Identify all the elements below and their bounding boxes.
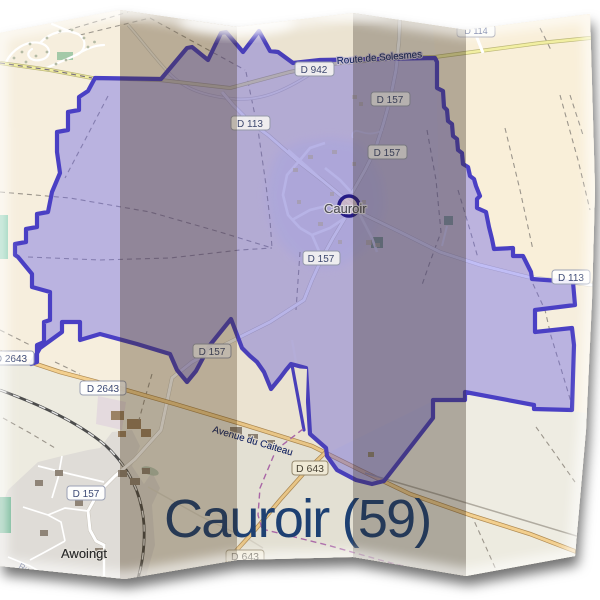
svg-text:D 113: D 113 — [558, 273, 584, 284]
svg-text:D 2643: D 2643 — [87, 384, 120, 395]
svg-text:Awoingt: Awoingt — [61, 546, 107, 561]
svg-text:D 157: D 157 — [73, 489, 100, 500]
